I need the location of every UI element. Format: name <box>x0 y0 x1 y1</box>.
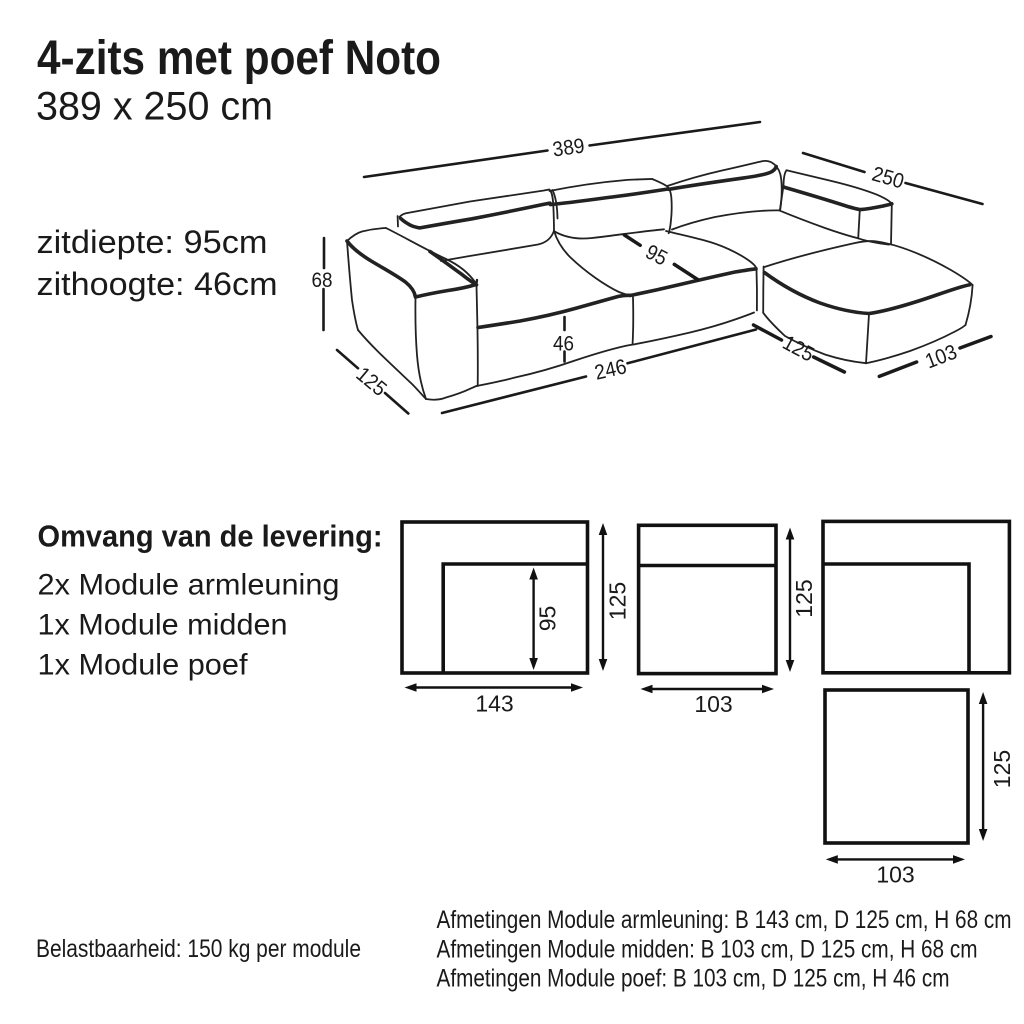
svg-text:68: 68 <box>312 269 333 292</box>
svg-text:46: 46 <box>553 333 574 356</box>
svg-text:Afmetingen Module armleuning:: Afmetingen Module armleuning: B 143 cm, … <box>437 906 1012 934</box>
svg-text:zithoogte: 46cm: zithoogte: 46cm <box>37 266 278 302</box>
svg-text:125: 125 <box>989 750 1015 788</box>
svg-text:103: 103 <box>694 691 732 717</box>
svg-text:Omvang van de levering:: Omvang van de levering: <box>38 519 383 554</box>
svg-text:143: 143 <box>475 691 513 717</box>
svg-text:1x Module midden: 1x Module midden <box>38 609 288 642</box>
svg-text:389: 389 <box>551 134 586 161</box>
svg-text:Afmetingen Module poef: B 103: Afmetingen Module poef: B 103 cm, D 125 … <box>437 964 950 992</box>
svg-text:389 x 250 cm: 389 x 250 cm <box>36 85 273 129</box>
svg-text:103: 103 <box>876 862 914 888</box>
svg-text:125: 125 <box>791 579 817 617</box>
svg-text:4-zits met poef Noto: 4-zits met poef Noto <box>37 32 441 85</box>
svg-text:2x Module armleuning: 2x Module armleuning <box>38 569 340 602</box>
svg-text:zitdiepte: 95cm: zitdiepte: 95cm <box>37 224 268 260</box>
svg-text:Belastbaarheid: 150 kg per mod: Belastbaarheid: 150 kg per module <box>36 935 361 963</box>
svg-text:1x Module poef: 1x Module poef <box>38 649 249 682</box>
svg-text:95: 95 <box>535 606 561 632</box>
svg-text:Afmetingen Module midden: B 10: Afmetingen Module midden: B 103 cm, D 12… <box>437 935 978 963</box>
svg-text:125: 125 <box>605 582 631 620</box>
